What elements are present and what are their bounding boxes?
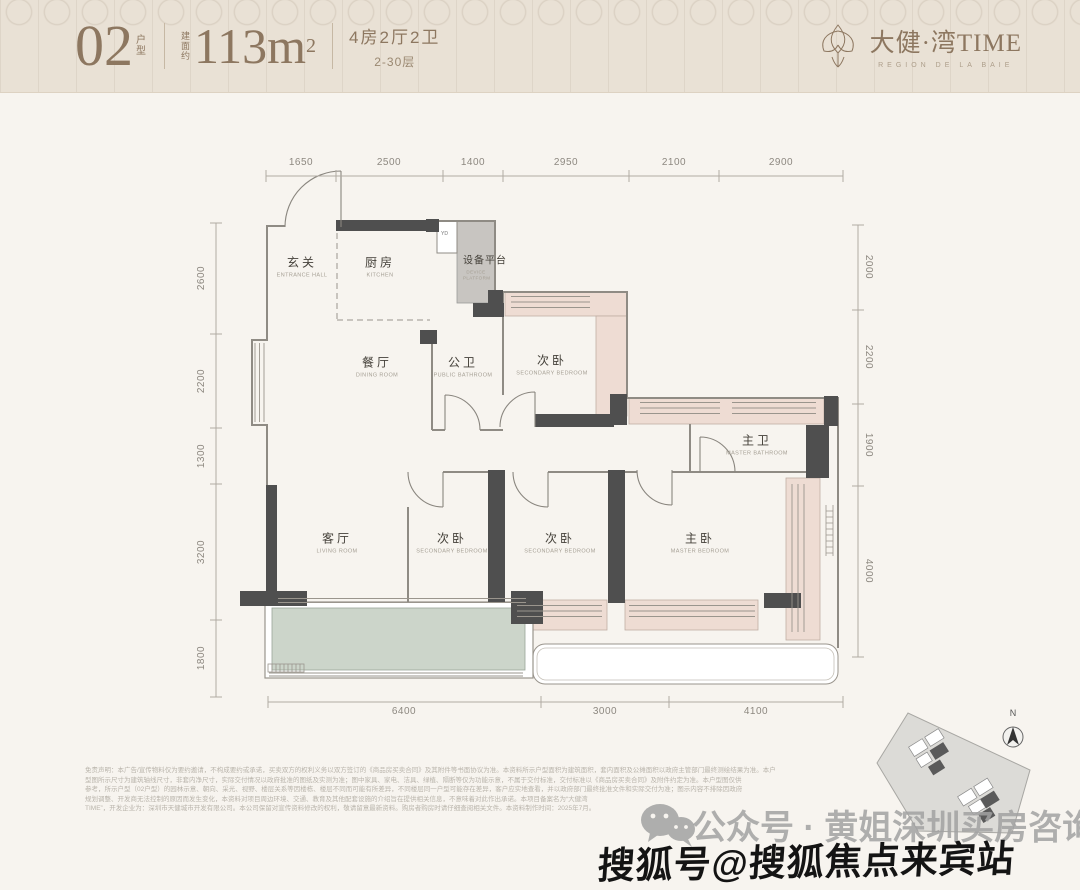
flyer-page: { "header": { "unit_code": "02", "unit_c… bbox=[0, 0, 1080, 872]
sohu-watermark: 搜狐号@搜狐焦点来宾站 bbox=[596, 828, 1017, 889]
wechat-icon bbox=[0, 0, 1080, 872]
